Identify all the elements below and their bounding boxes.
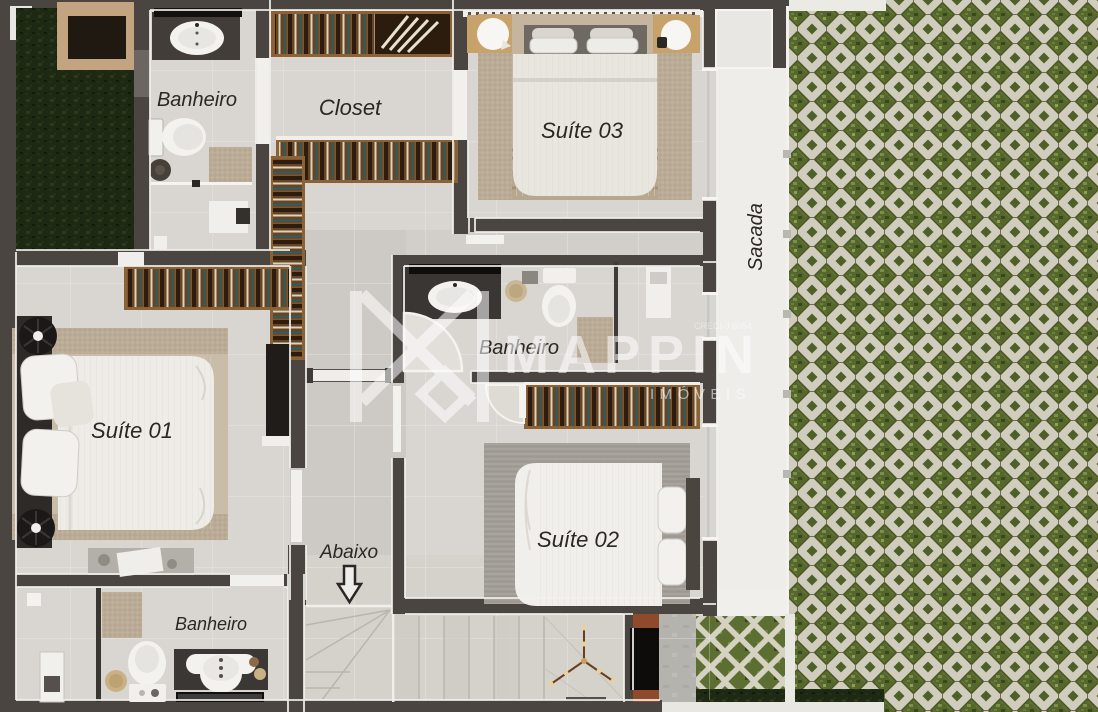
svg-text:Suíte 03: Suíte 03 <box>541 118 624 143</box>
svg-text:Banheiro: Banheiro <box>157 89 237 111</box>
svg-text:MAPPIN: MAPPIN <box>504 325 754 385</box>
svg-text:Suíte 01: Suíte 01 <box>91 418 173 443</box>
svg-text:CRECI-J 6054: CRECI-J 6054 <box>694 321 752 331</box>
svg-text:Closet: Closet <box>319 95 382 120</box>
svg-text:Abaixo: Abaixo <box>319 542 378 563</box>
svg-text:Suíte 02: Suíte 02 <box>537 527 619 552</box>
svg-text:Sacada: Sacada <box>745 203 767 271</box>
svg-text:Banheiro: Banheiro <box>175 614 247 634</box>
svg-text:IMÓVEIS: IMÓVEIS <box>650 386 751 403</box>
